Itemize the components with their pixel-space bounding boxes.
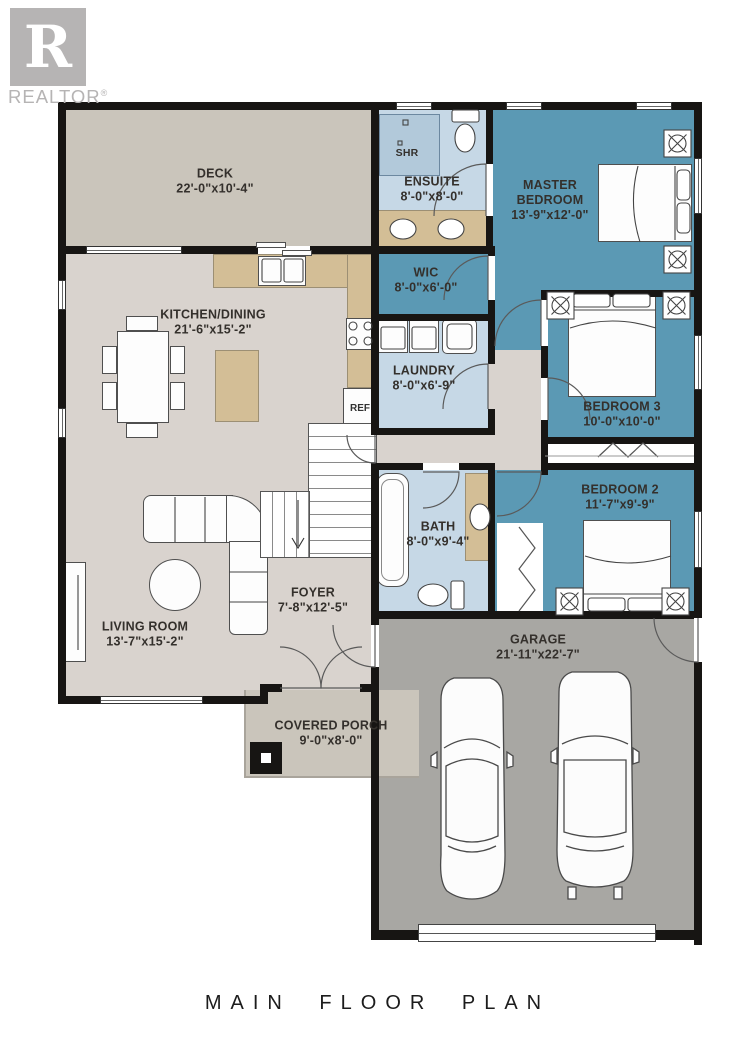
wall — [541, 437, 702, 444]
window — [694, 335, 702, 390]
bedroom2-closet-floor — [497, 523, 543, 613]
wall — [260, 684, 282, 692]
dining-chair — [126, 423, 158, 438]
wall — [203, 696, 268, 704]
window — [86, 246, 182, 254]
foyer-label: FOYER7'-8"x12'-5" — [278, 585, 348, 615]
porch-edge — [245, 776, 419, 778]
wall — [58, 696, 102, 704]
master-alcove-floor — [488, 294, 547, 350]
garage-label: GARAGE21'-11"x22'-7" — [496, 632, 580, 662]
wall — [541, 463, 702, 470]
covered-porch-label: COVERED PORCH9'-0"x8'-0" — [274, 718, 387, 748]
window — [100, 696, 203, 704]
door-opening — [488, 256, 495, 300]
kitchen-island — [215, 350, 259, 422]
bedroom2-label: BEDROOM 211'-7"x9'-9" — [581, 482, 659, 512]
garage-door-line — [419, 933, 655, 934]
dining-table — [117, 331, 169, 423]
window — [506, 102, 542, 110]
bathtub-inner — [381, 479, 404, 581]
window — [396, 102, 432, 110]
dining-chair — [102, 346, 117, 374]
tv-cabinet — [64, 562, 86, 662]
bath-label: BATH8'-0"x9'-4" — [406, 519, 469, 549]
staircase — [308, 423, 377, 558]
wall — [488, 463, 495, 618]
dining-chair — [170, 382, 185, 410]
dining-chair — [102, 382, 117, 410]
door-opening — [541, 378, 548, 420]
staircase-landing — [260, 491, 310, 558]
patio-slider-panel — [256, 242, 286, 248]
door-opening — [423, 463, 459, 470]
registered-mark: ® — [101, 88, 109, 98]
window — [694, 158, 702, 214]
coffee-table — [149, 559, 201, 611]
window — [636, 102, 672, 110]
wall — [58, 102, 66, 704]
floor-plan-page: R REALTOR® REF — [0, 0, 755, 1039]
window — [58, 280, 66, 310]
deck-label: DECK22'-0"x10'-4" — [176, 166, 253, 196]
wall — [541, 290, 702, 297]
door-opening — [486, 164, 493, 216]
wall — [654, 930, 702, 940]
master-bedroom-label: MASTER BEDROOM13'-9"x12'-0" — [500, 178, 600, 222]
wall — [360, 684, 379, 692]
door-opening — [694, 618, 702, 662]
laundry-label: LAUNDRY8'-0"x6'-9" — [392, 363, 455, 393]
wall — [371, 102, 379, 254]
shower-label: SHR — [396, 147, 419, 159]
plan-title: MAIN FLOOR PLAN — [205, 992, 550, 1015]
master-bed — [598, 164, 692, 242]
ensuite-vanity — [377, 210, 487, 248]
realtor-logo-icon: R — [10, 8, 86, 86]
bathtub — [376, 473, 409, 587]
dryer — [409, 320, 439, 353]
wall — [371, 463, 379, 618]
utility-sink — [442, 319, 477, 354]
garage-door — [418, 924, 656, 942]
kitchen-sink — [258, 256, 306, 286]
door-opening — [371, 625, 379, 667]
wic-label: WIC8'-0"x6'-0" — [394, 265, 457, 295]
wall — [371, 428, 495, 435]
realtor-logo-text: REALTOR® — [8, 86, 108, 108]
door-opening — [541, 300, 548, 346]
porch-pillar-core — [261, 753, 271, 763]
washer — [378, 320, 408, 353]
window — [58, 408, 66, 438]
wall — [58, 102, 702, 110]
wall — [371, 314, 493, 321]
realtor-logo-letter: R — [24, 18, 72, 76]
kitchen-dining-label: KITCHEN/DINING21'-6"x15'-2" — [160, 307, 266, 337]
sofa-section — [143, 495, 233, 543]
wall — [371, 246, 493, 254]
ensuite-label: ENSUITE8'-0"x8'-0" — [400, 174, 463, 204]
window — [694, 511, 702, 568]
shower — [379, 114, 440, 176]
bedroom3-label: BEDROOM 310'-0"x10'-0" — [583, 399, 661, 429]
dining-chair — [170, 346, 185, 374]
wall — [371, 246, 379, 435]
wall — [371, 611, 702, 619]
patio-slider-panel — [282, 250, 312, 256]
wall — [371, 930, 422, 940]
dining-chair — [126, 316, 158, 331]
living-room-label: LIVING ROOM13'-7"x15'-2" — [102, 619, 188, 649]
bedroom2-bed — [583, 520, 671, 614]
bedroom3-bed — [568, 291, 656, 397]
